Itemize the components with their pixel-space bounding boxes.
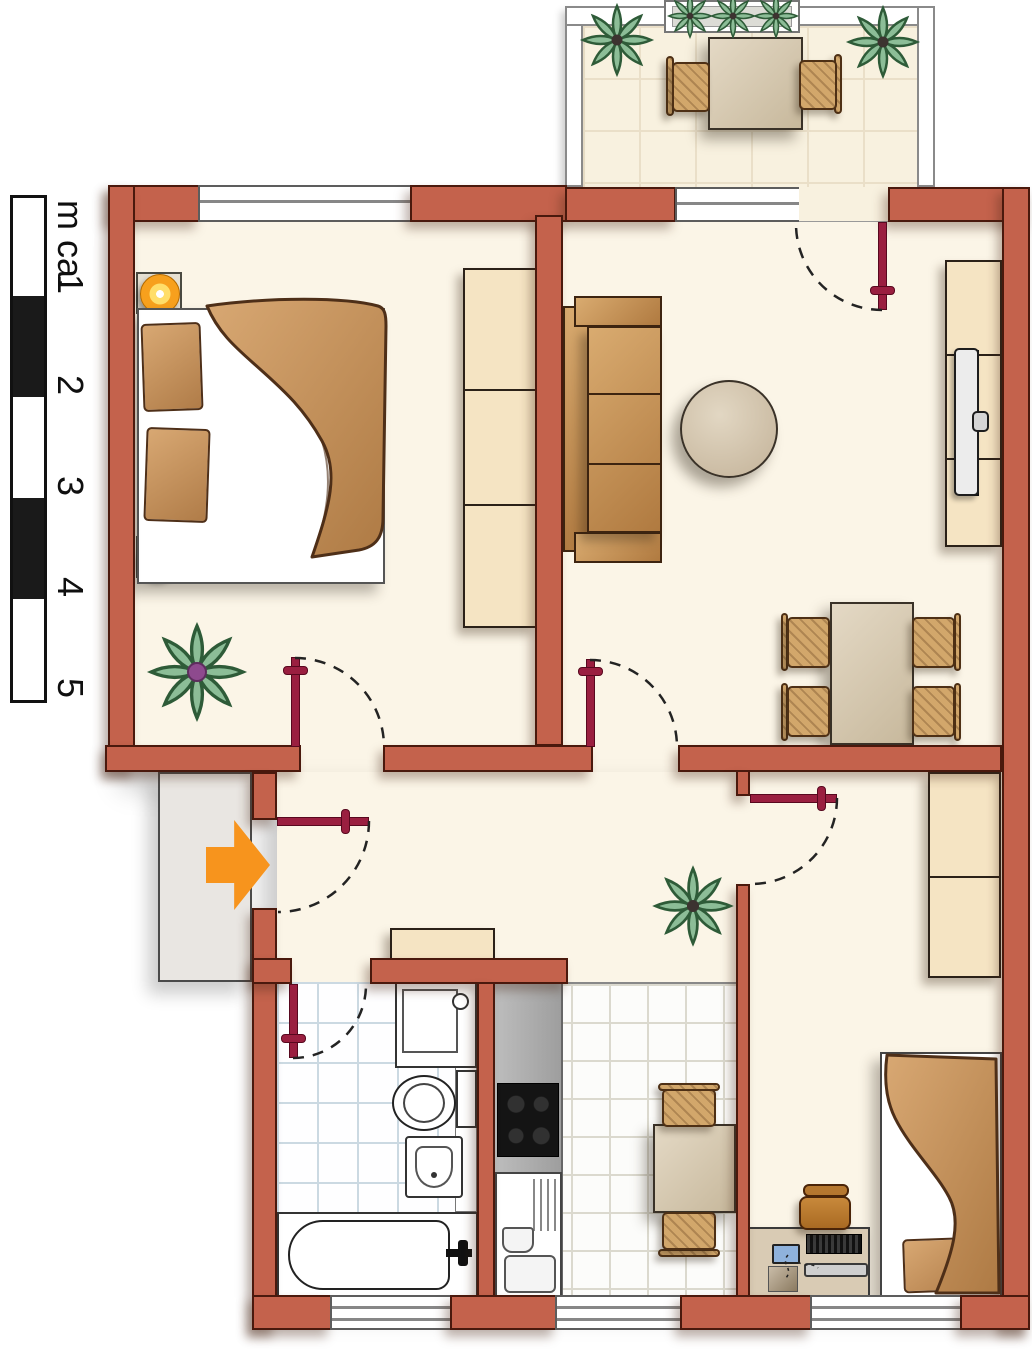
floor-plan: m ca. 1 2 3 4 5 [0, 0, 1032, 1351]
sofa-backrest [563, 306, 589, 552]
wall-entry [252, 772, 277, 820]
keyboard [806, 1234, 862, 1254]
wall-bedroom2-west [736, 884, 750, 1297]
dining-chair-backrest [954, 683, 961, 741]
scale-bar-segment-black [13, 498, 44, 599]
bed-pillow [140, 322, 203, 412]
door-handle [281, 1034, 306, 1043]
door-handle [283, 666, 308, 675]
balcony-door-threshold [799, 187, 889, 222]
wall-south [680, 1295, 812, 1330]
wall-south [960, 1295, 1030, 1330]
wall-hall-north [105, 745, 301, 772]
balcony-table [708, 37, 803, 130]
scale-tick-3: 3 [52, 476, 88, 496]
shower-drain [452, 993, 469, 1010]
bathtub-faucet-knob [458, 1240, 468, 1266]
scale-tick-2: 2 [52, 375, 88, 395]
door-handle [817, 786, 826, 811]
scale-tick-1: 1 [52, 274, 88, 294]
shower [395, 982, 477, 1068]
dining-chair [787, 617, 830, 668]
wall-south [252, 1295, 332, 1330]
wall-hall-north [383, 745, 593, 772]
round-table [680, 380, 778, 478]
monitor [772, 1244, 800, 1264]
window-bedroom-main [198, 185, 412, 222]
wall-hall-north [678, 745, 1002, 772]
keyboard-tray [804, 1263, 868, 1277]
scale-tick-4: 4 [52, 577, 88, 597]
wardrobe-divider [465, 504, 535, 506]
balcony-chair-right [799, 60, 837, 110]
kitchen-chair-backrest [658, 1249, 720, 1257]
planter-box-inner [672, 6, 792, 27]
wall-west [108, 185, 135, 772]
sofa-armrest [574, 532, 662, 563]
wall-bathroom-north [252, 958, 292, 984]
wall-north [565, 187, 676, 222]
kitchen-table [653, 1124, 736, 1213]
bed-pillow [902, 1237, 984, 1294]
wardrobe [463, 268, 537, 628]
bathroom-sink [405, 1136, 463, 1198]
door-entrance [277, 817, 369, 826]
door-handle [870, 286, 895, 295]
sofa-seat-divider [589, 393, 660, 395]
wall-bedroom2-west [736, 770, 750, 796]
hall-shelf [390, 928, 495, 962]
dining-chair [912, 617, 955, 668]
sink-basin-large [504, 1255, 556, 1293]
wall-east [1002, 187, 1030, 1330]
balcony-wall-right [917, 6, 935, 187]
shower-tray [402, 989, 458, 1053]
door-bathroom [289, 984, 298, 1058]
door-balcony [878, 222, 887, 310]
sofa-armrest [574, 296, 662, 327]
wardrobe-divider [465, 389, 535, 391]
window-bedroom-second [810, 1295, 962, 1330]
dining-table [830, 602, 914, 745]
bathtub [288, 1220, 450, 1290]
drainboard-lines [533, 1179, 559, 1231]
wall-bath-kitchen-divider [477, 982, 495, 1297]
wardrobe-divider [930, 876, 999, 878]
stove [497, 1083, 559, 1157]
window-bathroom [330, 1295, 452, 1330]
dining-chair [912, 686, 955, 737]
dining-chair [787, 686, 830, 737]
kitchen-sink-unit [495, 1172, 562, 1297]
office-chair [799, 1196, 851, 1230]
computer-tower [768, 1266, 798, 1292]
toilet-tank [456, 1070, 477, 1128]
bed-pillow [143, 427, 210, 523]
door-handle [341, 809, 350, 834]
dining-chair-backrest [954, 613, 961, 671]
sink-drain-dot [431, 1172, 437, 1178]
toilet-bowl [392, 1075, 456, 1131]
toilet-seat [403, 1083, 445, 1123]
kitchen-chair [662, 1089, 716, 1127]
balcony-wall-left [565, 6, 583, 187]
door-handle [578, 667, 603, 676]
kitchen-chair [662, 1212, 716, 1250]
wall-bathroom-north [370, 958, 568, 984]
wall-bedroom-living-divider [535, 215, 563, 746]
balcony-chair-left [672, 62, 710, 112]
wardrobe [928, 772, 1001, 978]
sofa-seats [587, 326, 662, 533]
sink-basin-small [502, 1227, 534, 1253]
window-kitchen [555, 1295, 682, 1330]
scale-tick-5: 5 [52, 678, 88, 698]
scale-bar [10, 195, 47, 703]
sofa-seat-divider [589, 463, 660, 465]
sink-basin [415, 1146, 453, 1188]
wall-south [450, 1295, 557, 1330]
tv-stand-knob [972, 411, 989, 432]
window-living-room [675, 187, 801, 222]
scale-bar-segment-black [13, 296, 44, 397]
